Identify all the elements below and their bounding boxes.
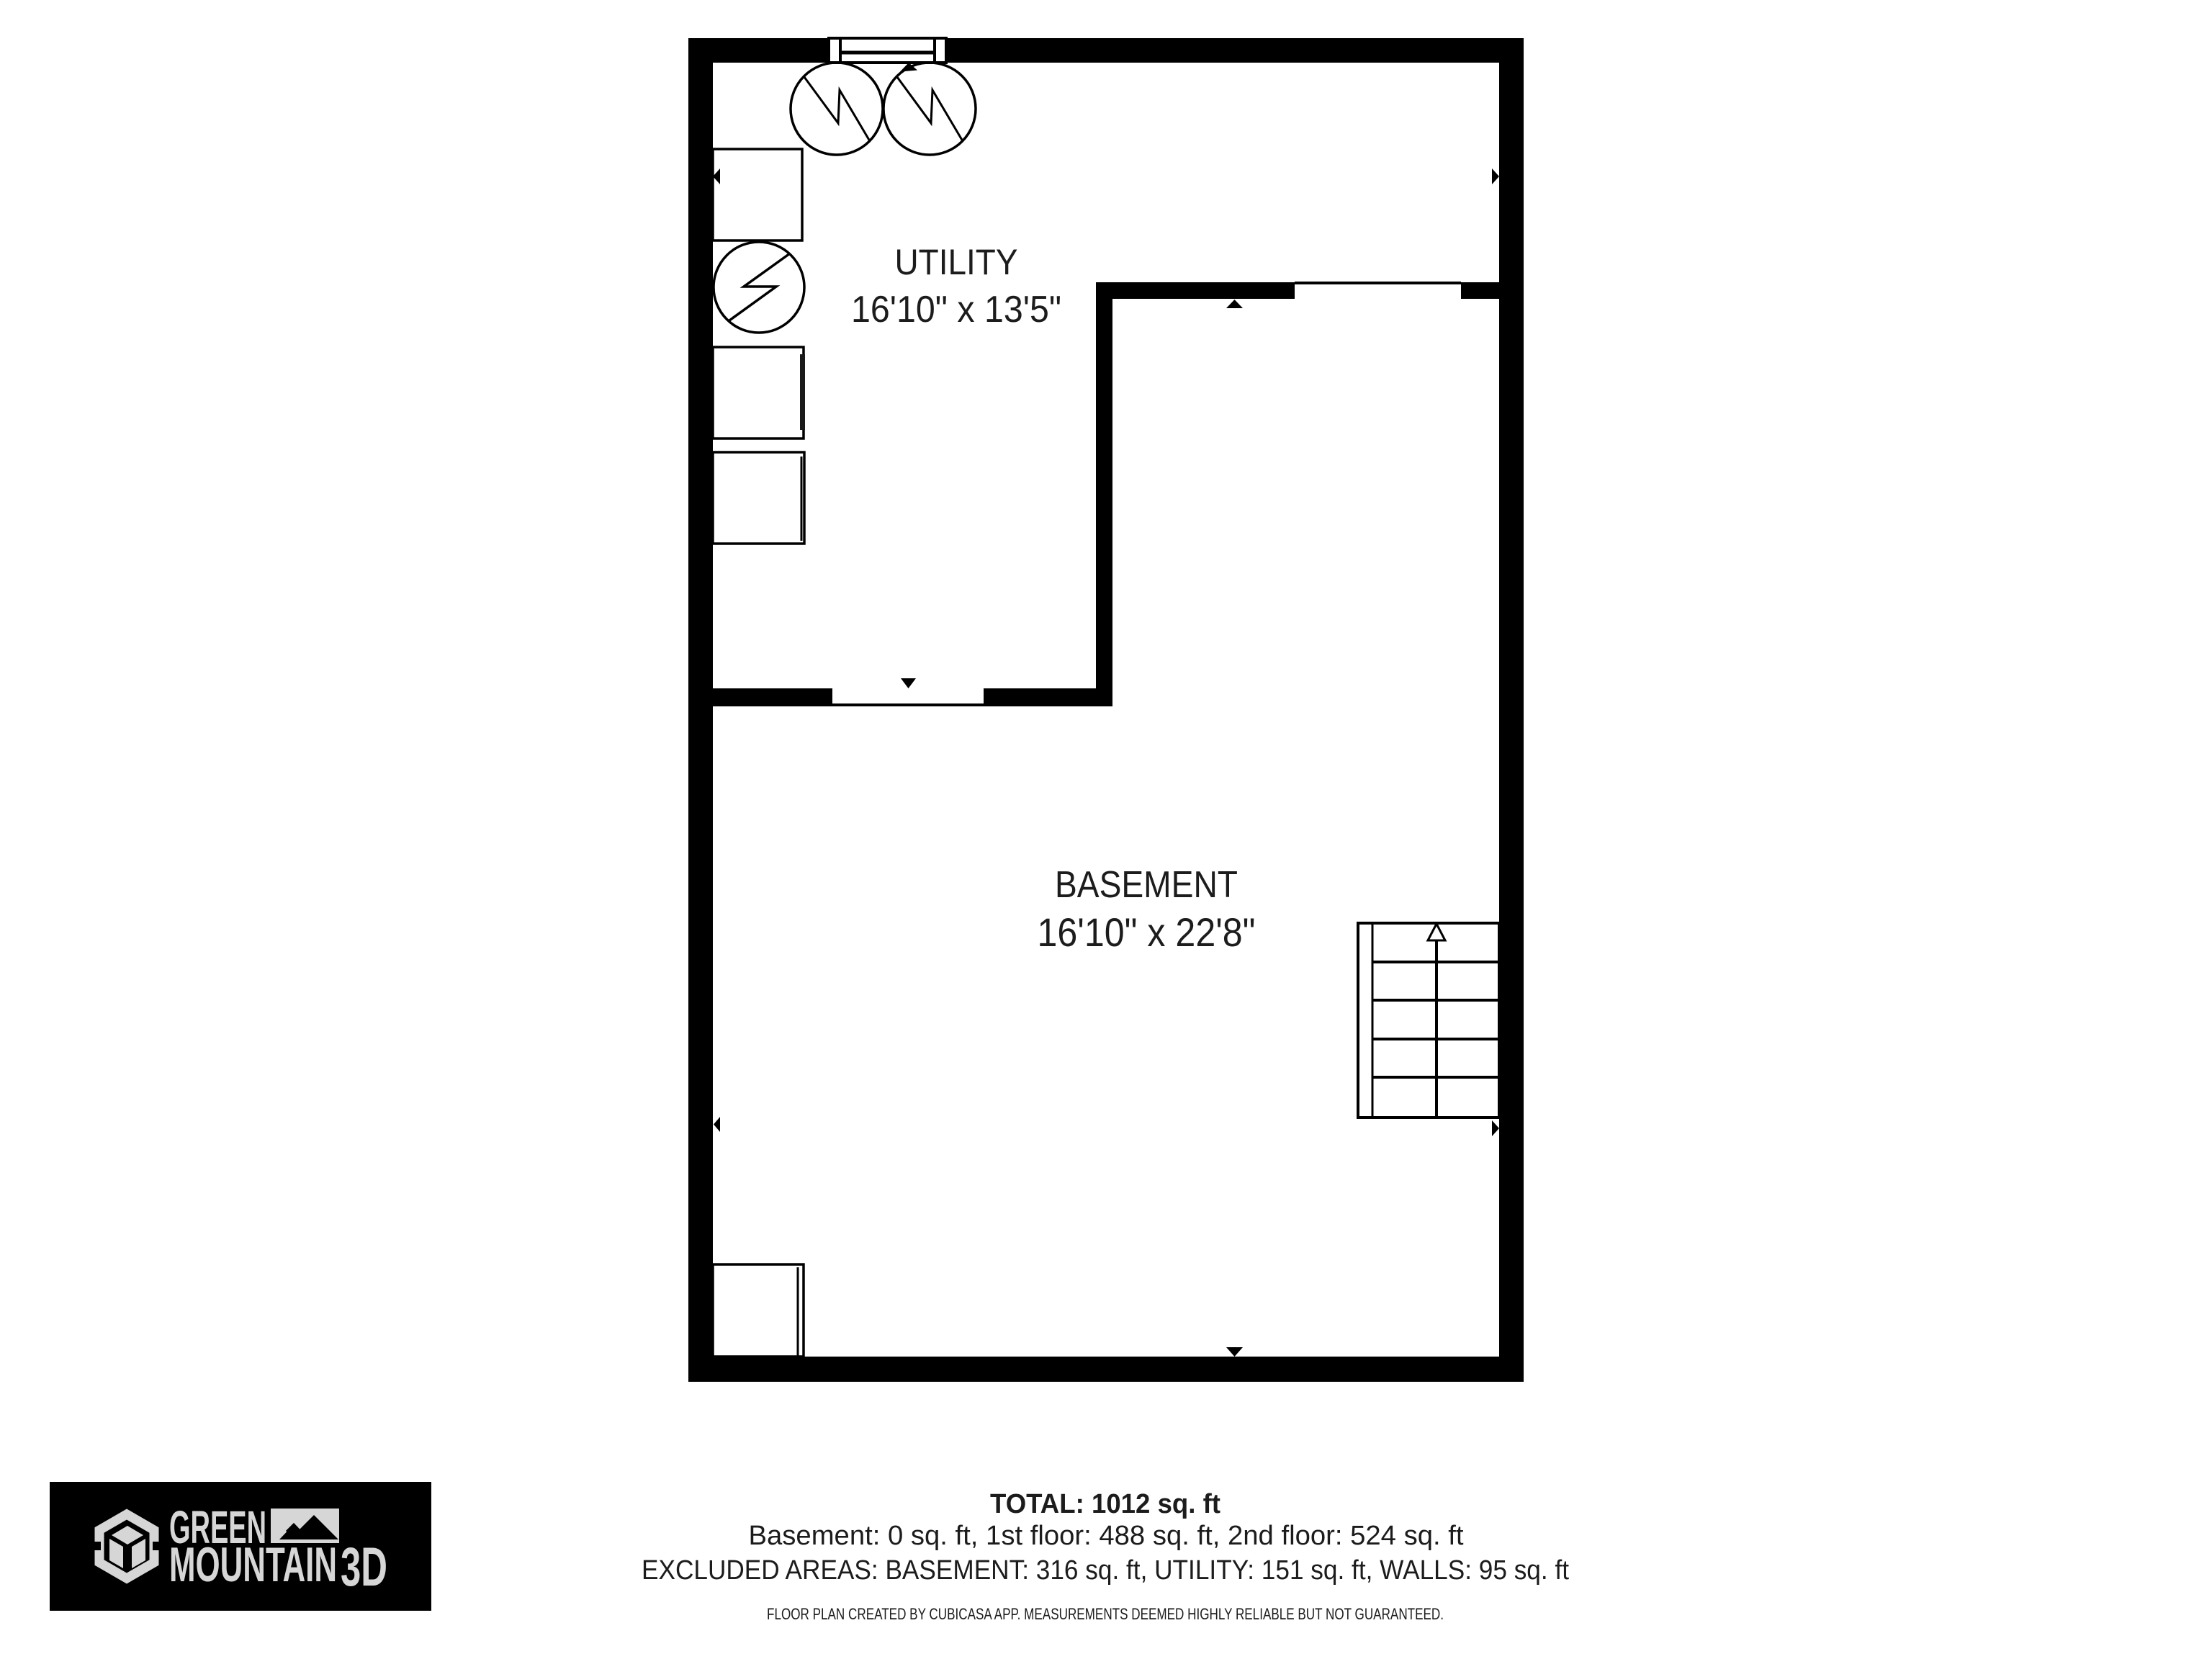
- svg-text:16'10" x 22'8": 16'10" x 22'8": [1038, 909, 1256, 955]
- svg-text:FLOOR PLAN CREATED BY CUBICASA: FLOOR PLAN CREATED BY CUBICASA APP. MEAS…: [767, 1605, 1444, 1623]
- svg-text:UTILITY: UTILITY: [895, 242, 1018, 282]
- svg-text:TOTAL: 1012 sq. ft: TOTAL: 1012 sq. ft: [990, 1489, 1220, 1519]
- svg-text:BASEMENT: BASEMENT: [1055, 864, 1238, 906]
- svg-text:Basement: 0 sq. ft, 1st floor:: Basement: 0 sq. ft, 1st floor: 488 sq. f…: [749, 1521, 1464, 1551]
- svg-text:16'10" x 13'5": 16'10" x 13'5": [851, 289, 1061, 331]
- svg-text:EXCLUDED AREAS: BASEMENT: 316: EXCLUDED AREAS: BASEMENT: 316 sq. ft, UT…: [642, 1555, 1569, 1586]
- svg-text:MOUNTAIN: MOUNTAIN: [169, 1537, 337, 1592]
- svg-text:3D: 3D: [341, 1537, 387, 1598]
